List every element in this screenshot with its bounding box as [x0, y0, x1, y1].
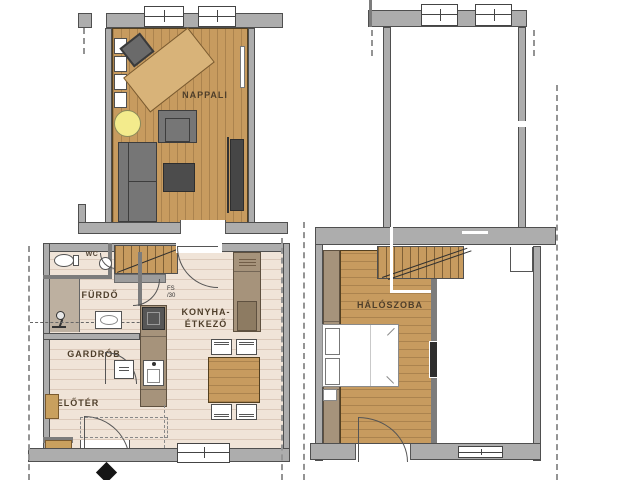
tv-panel-icon	[429, 341, 438, 378]
section-line-dashed	[533, 30, 535, 56]
washbasin-icon	[95, 311, 122, 329]
stair-opening-line	[390, 227, 393, 292]
kitchen-sink-icon	[143, 360, 164, 386]
chair-back-line	[214, 414, 229, 417]
window-with-radiator-icon	[177, 443, 230, 463]
stove-icon	[142, 307, 165, 330]
room-label-kitchen-line1: KONYHA-	[178, 307, 234, 317]
shelf-unit-icon	[114, 56, 127, 72]
section-line-dashed	[371, 30, 373, 56]
window-tick	[440, 9, 441, 21]
bed-corner-tick	[386, 376, 394, 384]
room-label-hall: ELŐTÉR	[52, 398, 104, 408]
pillow-icon	[325, 358, 340, 385]
stairs-icon	[114, 245, 178, 274]
room-label-bedroom: HÁLÓSZOBA	[348, 300, 432, 310]
wall-right-bedroom-level	[533, 246, 541, 461]
pillow-icon	[325, 328, 340, 355]
kitchen-door-leaf	[177, 246, 218, 247]
wall-left-upper-room	[383, 27, 391, 228]
chair-back-line	[214, 342, 229, 345]
wall-segment	[78, 13, 92, 28]
stove-inner	[147, 312, 160, 325]
armchair-icon	[158, 110, 197, 143]
wall-right-upper-room	[518, 27, 526, 228]
sofa-backrest-line	[128, 143, 129, 221]
bench-icon	[45, 394, 59, 419]
dining-table-icon	[208, 357, 260, 403]
wall-segment	[369, 0, 372, 27]
tv-wall-line	[227, 137, 229, 213]
counter-divider	[141, 336, 166, 337]
chair-back-line	[239, 414, 254, 417]
window-tick	[164, 10, 165, 22]
bathroom-shower-zone	[50, 279, 80, 332]
floor-lamp-icon	[114, 110, 141, 137]
floor-plan-image: NAPPALI WC FÜRDŐ GARDRÓB ELŐTÉR	[0, 0, 640, 480]
window-with-radiator-icon	[458, 446, 503, 458]
tiny-text-line	[239, 265, 256, 266]
stairs-break-line	[382, 248, 467, 278]
sink-basin	[147, 369, 160, 383]
window-tick	[217, 10, 218, 22]
window-with-radiator-icon	[144, 6, 184, 27]
shelf-unit-icon	[114, 92, 127, 108]
dining-chair-icon	[211, 404, 232, 420]
bedroom-door-leaf	[358, 417, 359, 462]
entrance-north-diamond-icon	[96, 462, 117, 480]
wall-right-kitchen-level	[283, 243, 290, 453]
section-line-dashed	[83, 28, 85, 54]
toilet-icon	[54, 254, 74, 267]
appliance-lines	[119, 367, 129, 371]
window-with-radiator-icon	[421, 4, 458, 26]
bed-icon	[322, 324, 399, 387]
tv-media-unit-icon	[230, 139, 244, 211]
window-with-radiator-icon	[198, 6, 236, 27]
shower-base-line	[52, 326, 66, 328]
wardrobe-door-leaf	[105, 352, 106, 384]
faucet-dot	[152, 362, 156, 366]
chimney-notch-outline	[510, 247, 533, 272]
window-tick	[204, 447, 205, 458]
wall-top-living	[106, 13, 283, 28]
wall-break-gap	[517, 121, 527, 127]
stairs-break-line	[388, 250, 472, 280]
window-with-radiator-icon	[475, 4, 512, 26]
tiny-text-line	[239, 259, 256, 260]
appliance-icon	[114, 360, 134, 379]
window-tick	[494, 9, 495, 21]
chair-back-line	[239, 342, 254, 345]
room-label-living: NAPPALI	[172, 90, 238, 100]
wall-right-living	[248, 28, 255, 234]
toilet-tank	[73, 255, 79, 266]
wall-radiator-icon	[240, 46, 245, 88]
pantry-cabinet-icon	[233, 252, 261, 332]
armchair-seat	[165, 118, 190, 142]
blanket-fold-line	[370, 325, 371, 386]
window-tick	[481, 449, 482, 455]
bed-corner-tick	[387, 328, 395, 336]
wall-segment	[78, 204, 86, 224]
door-size-tag-line1: FS	[167, 286, 175, 292]
dining-chair-icon	[236, 339, 257, 355]
cabinet-dark-section	[237, 301, 257, 331]
room-label-bath: FÜRDŐ	[72, 290, 128, 300]
dining-chair-icon	[236, 404, 257, 420]
wall-left-living	[105, 28, 112, 234]
section-line-dashed	[556, 85, 558, 480]
stairs-break-line	[117, 248, 179, 273]
dining-chair-icon	[211, 339, 232, 355]
floor-dash-line	[164, 405, 165, 448]
sofa-icon	[118, 142, 157, 222]
passage-opening	[180, 220, 226, 234]
door-size-tag-line2: /30	[167, 293, 175, 299]
section-line-dashed	[303, 222, 305, 480]
wall-bath-bottom	[43, 333, 140, 340]
coffee-table-icon	[163, 163, 195, 192]
opening-marker	[462, 231, 488, 234]
wall-bottom-kitchen-level	[28, 448, 290, 462]
counter-divider	[141, 389, 166, 390]
section-line-dashed	[28, 246, 30, 480]
cabinet-divider	[234, 271, 260, 272]
wardrobe-divider	[324, 321, 339, 322]
wall-mid-right-plan	[315, 227, 556, 245]
sofa-cushion-line	[128, 181, 156, 182]
room-label-kitchen-line2: ÉTKEZŐ	[178, 319, 234, 329]
section-line-dashed	[281, 238, 283, 480]
tiny-text-line	[239, 262, 256, 263]
washbasin-bowl	[100, 315, 118, 325]
nightstand-icon	[323, 389, 337, 401]
entrance-canopy-dashed	[80, 417, 168, 438]
wall-bottom-right-plan	[310, 443, 541, 460]
